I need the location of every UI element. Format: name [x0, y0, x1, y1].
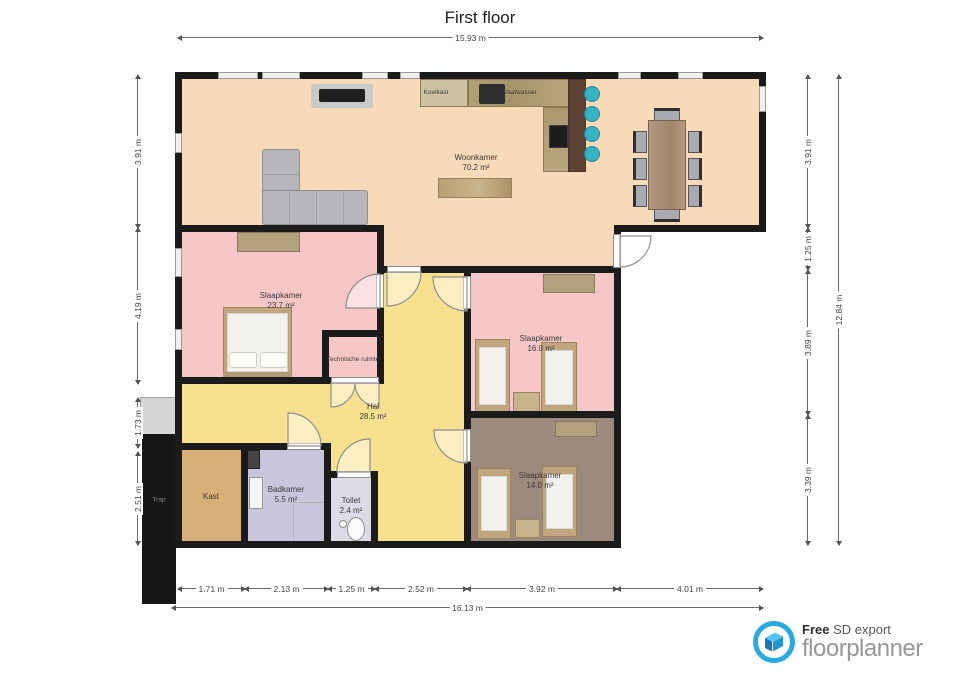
window: [262, 72, 300, 79]
window: [175, 248, 182, 277]
dresser: [555, 421, 597, 437]
floorplanner-watermark: Free SD export floorplanner: [752, 620, 923, 664]
wall-slaapkamer-groot-top: [175, 225, 383, 232]
radiator: [249, 477, 263, 509]
dim-bottom-seg-2: 2.13 m: [245, 588, 328, 589]
dim-bottom-seg-4: 2.52 m: [375, 588, 467, 589]
floor-plan-page: First floor 15.93 m 1.71 m 2.13 m 1.25 m…: [0, 0, 960, 679]
tv: [319, 89, 365, 102]
pillow: [260, 352, 288, 368]
kitchen-sink: [479, 84, 505, 104]
bar-stool: [584, 126, 600, 142]
stair-landing: [140, 397, 180, 435]
dim-right-seg-1: 3.91 m: [807, 75, 808, 228]
sofa: [262, 190, 368, 225]
wall-kast-right: [241, 443, 248, 548]
dining-chair: [654, 208, 680, 222]
dim-right-seg-2: 1.25 m: [807, 228, 808, 270]
coffee-table: [438, 178, 512, 198]
dim-top-total: 15.93 m: [178, 37, 763, 38]
wall-technische-ruimte-top: [322, 330, 384, 337]
dim-bottom-seg-6: 4.01 m: [617, 588, 763, 589]
dining-chair: [688, 131, 702, 153]
window: [678, 72, 703, 79]
wall-dining-bottom: [614, 225, 766, 232]
dining-chair: [688, 185, 702, 207]
wall-badkamer-right: [324, 443, 331, 548]
door-slaapkamer-klein: [463, 429, 471, 462]
dim-left-seg-2: 4.19 m: [137, 228, 138, 384]
door-slaapkamer-groot: [376, 274, 384, 308]
page-title: First floor: [380, 8, 580, 28]
label-koelkast: Koelkast: [424, 89, 449, 97]
window: [400, 72, 420, 79]
door-slaapkamer-midden: [463, 276, 471, 309]
dining-chair: [633, 185, 647, 207]
dresser: [543, 274, 595, 293]
single-bed-mattress: [481, 476, 507, 531]
wall-bedroom-divider: [464, 411, 618, 418]
label-kast: Kast: [203, 492, 219, 502]
shower-enclosure: [293, 502, 325, 542]
stove: [549, 125, 568, 148]
dim-bottom-total: 16.13 m: [172, 607, 763, 608]
door-toilet: [337, 471, 371, 478]
dim-left-seg-3: 1.73 m: [137, 398, 138, 448]
staircase-label: Trap: [152, 497, 165, 504]
dining-chair: [688, 158, 702, 180]
door-entrance: [613, 234, 621, 268]
label-slaapkamer-groot: Slaapkamer 23.7 m²: [260, 291, 303, 311]
window: [218, 72, 258, 79]
nightstand: [515, 519, 540, 538]
label-hal: Hal 28.5 m²: [359, 402, 386, 422]
dim-bottom-seg-5: 3.92 m: [467, 588, 617, 589]
wall-exterior-right-lower: [614, 225, 621, 548]
label-badkamer: Badkamer 5.5 m²: [268, 485, 304, 505]
label-vaatwasser: Vaatwasser: [503, 89, 536, 97]
label-woonkamer: Woonkamer 70.2 m²: [455, 153, 498, 173]
single-bed-mattress: [545, 350, 573, 405]
window: [175, 329, 182, 350]
dim-left-seg-1: 3.91 m: [137, 75, 138, 228]
window: [759, 86, 766, 112]
wall-toilet-right: [371, 471, 378, 548]
dining-chair: [633, 158, 647, 180]
single-bed-mattress: [479, 347, 506, 405]
dim-bottom-seg-3: 1.25 m: [328, 588, 375, 589]
dim-left-seg-4: 2.51 m: [137, 452, 138, 545]
door-woonkamer-hal: [387, 266, 421, 273]
staircase: [142, 434, 176, 604]
dim-right-seg-4: 3.39 m: [807, 415, 808, 545]
dining-chair: [633, 131, 647, 153]
dining-table: [648, 120, 686, 210]
dim-bottom-seg-1: 1.71 m: [178, 588, 245, 589]
window: [175, 133, 182, 153]
label-slaapkamer-klein: Slaapkamer 14.0 m²: [519, 471, 562, 491]
label-slaapkamer-midden: Slaapkamer 16.0 m²: [520, 334, 563, 354]
window: [362, 72, 388, 79]
bar-stool: [584, 86, 600, 102]
door-arc: [620, 236, 651, 267]
dim-right-total: 12.84 m: [838, 75, 839, 545]
dim-right-seg-3: 3.89 m: [807, 270, 808, 415]
pillow: [229, 352, 257, 368]
toilet-flush-button: [339, 520, 347, 528]
toilet-bowl: [347, 517, 365, 541]
door-badkamer: [287, 443, 321, 450]
window: [618, 72, 641, 79]
nightstand: [513, 392, 540, 413]
logo-brand: floorplanner: [802, 637, 923, 661]
door-technische-ruimte: [331, 377, 379, 384]
bar-stool: [584, 106, 600, 122]
dresser: [237, 232, 300, 252]
bar-stool: [584, 146, 600, 162]
label-toilet: Toilet 2.4 m²: [340, 496, 363, 516]
floorplanner-logo-icon: [752, 620, 796, 664]
room-woonkamer-extension: [380, 228, 617, 270]
label-technische-ruimte: Technische ruimte: [327, 356, 379, 364]
